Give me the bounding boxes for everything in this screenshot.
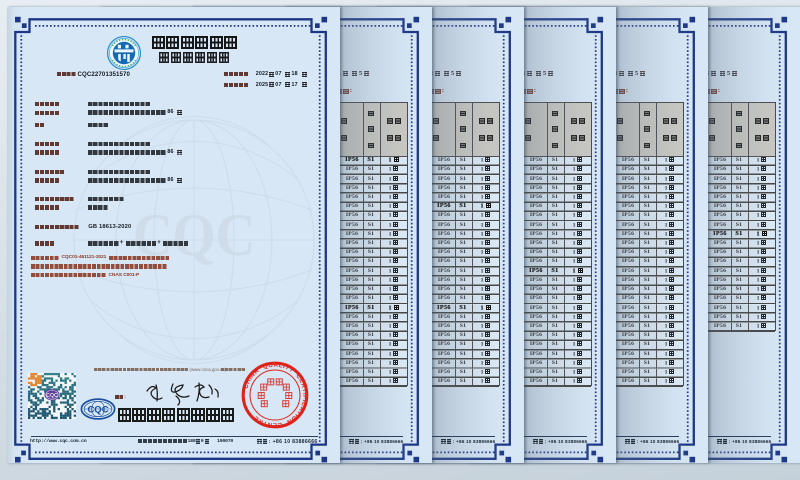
svg-text:CQC: CQC [88, 404, 109, 415]
svg-text:CQC: CQC [46, 392, 58, 398]
